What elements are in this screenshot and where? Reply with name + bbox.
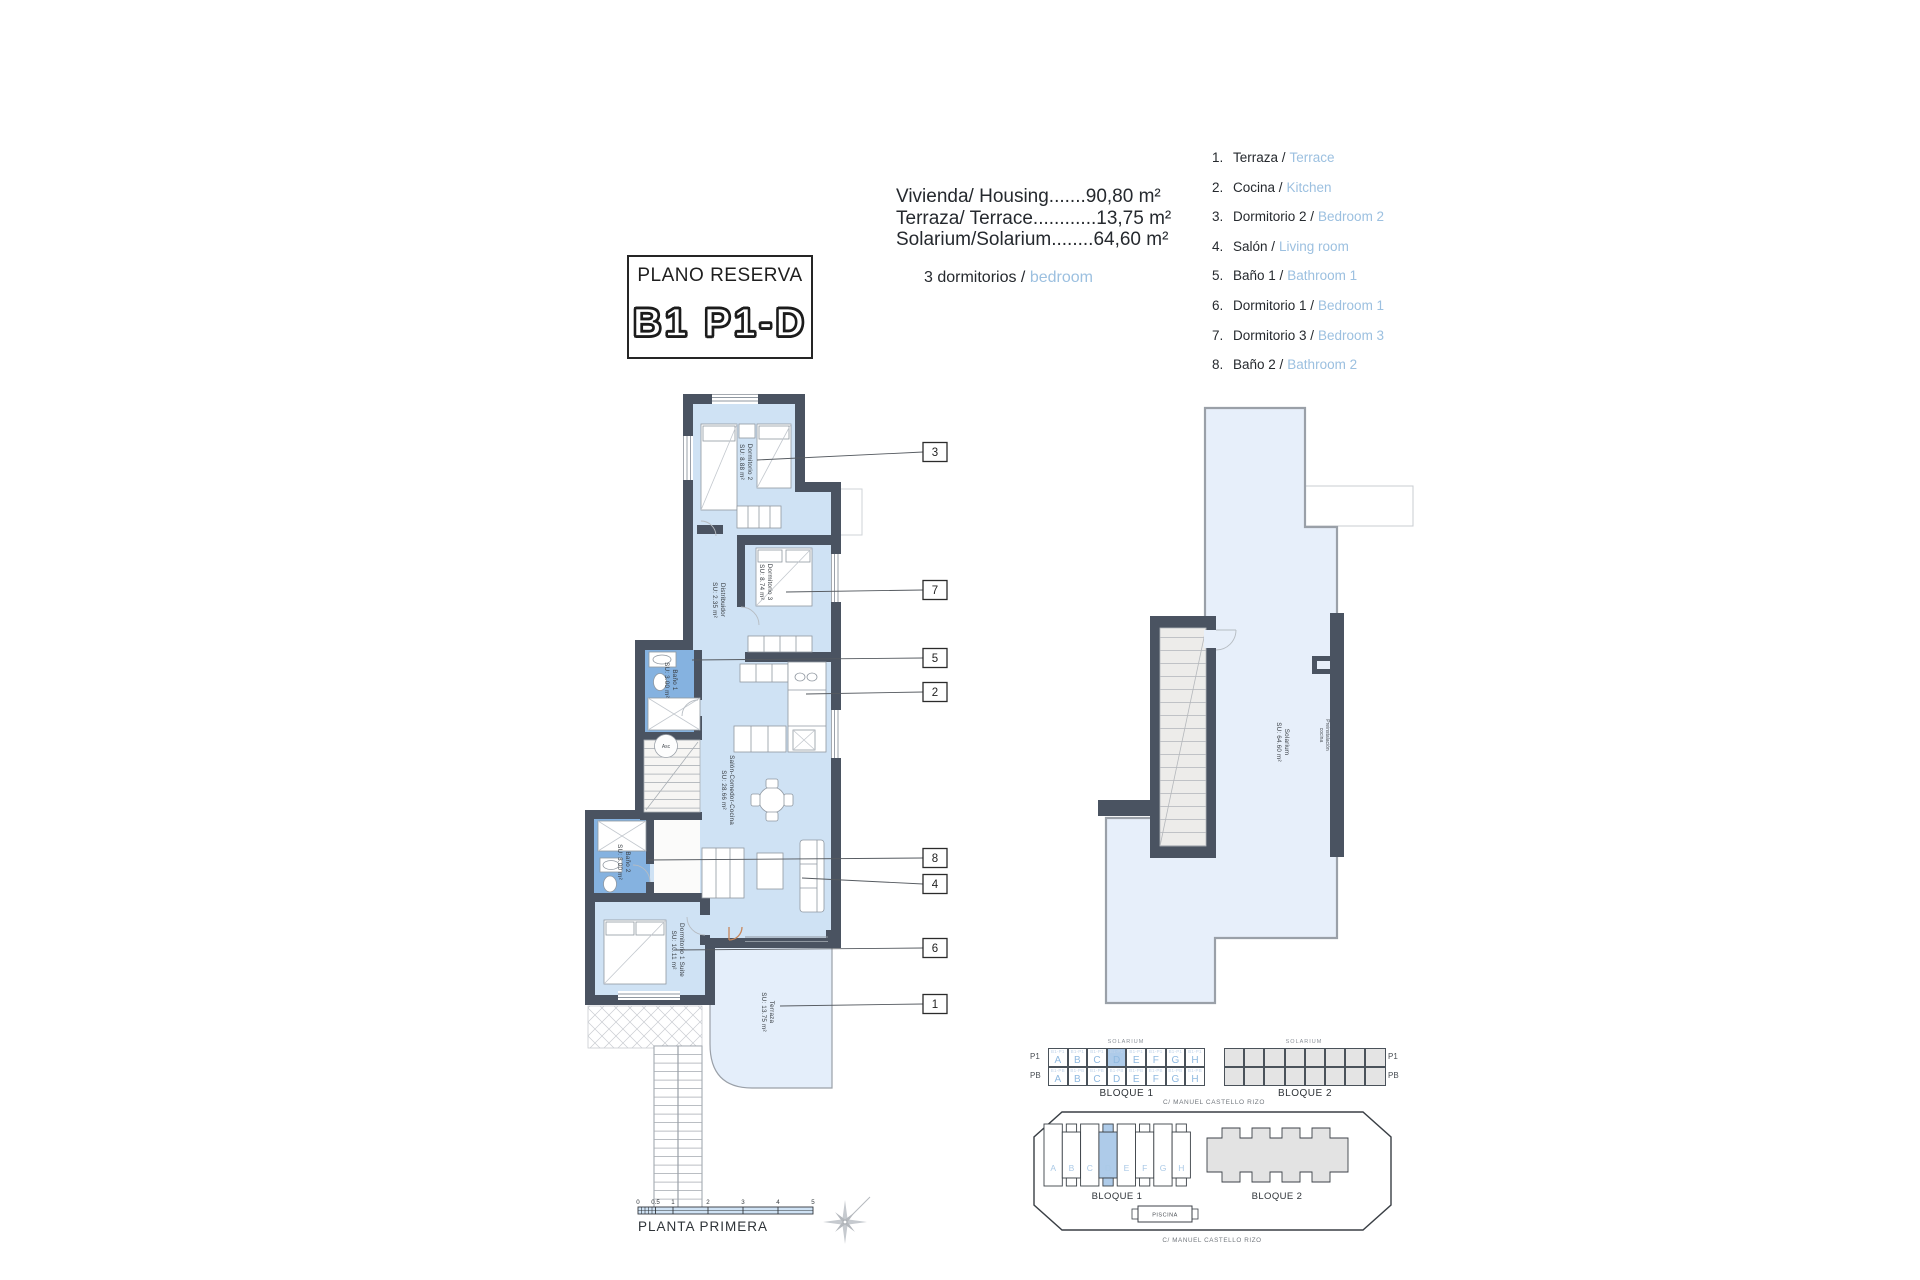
svg-text:2: 2 — [706, 1199, 710, 1206]
bloque1-units — [1044, 1124, 1190, 1186]
callout-6: 6 — [923, 939, 947, 958]
unit-cell — [1224, 1067, 1244, 1086]
area-summary: Vivienda/ Housing.......90,80 m² Terraza… — [896, 186, 1171, 288]
scale-bar — [638, 1207, 813, 1214]
svg-text:5: 5 — [932, 653, 938, 665]
svg-text:Asc: Asc — [662, 744, 671, 750]
legend-item: 5.Baño 1 /Bathroom 1 — [1212, 268, 1384, 298]
unit-cell — [1244, 1048, 1264, 1067]
svg-text:F: F — [1142, 1163, 1147, 1173]
unit-cell — [1365, 1067, 1385, 1086]
svg-text:2: 2 — [932, 687, 938, 699]
callout-boxes: 3 7 5 2 8 4 6 1 — [923, 443, 947, 1014]
unit-cell: B1-P1G — [1166, 1048, 1186, 1067]
unit-cell: B1-P1H — [1185, 1048, 1205, 1067]
scale-ticks: 0 0.5 1 2 3 4 5 — [636, 1199, 815, 1206]
site-bloque1-label: BLOQUE 1 — [1092, 1191, 1143, 1202]
svg-text:G: G — [1160, 1163, 1167, 1173]
north-arrow-icon — [823, 1197, 870, 1244]
svg-text:A: A — [1050, 1163, 1056, 1173]
callout-5: 5 — [923, 649, 947, 668]
callout-3: 3 — [923, 443, 947, 462]
unit-cell: B1-P1C — [1087, 1048, 1107, 1067]
entry-landing — [654, 820, 700, 893]
unit-cell — [1325, 1048, 1345, 1067]
unit-cell: B1-PBG — [1166, 1067, 1186, 1086]
callout-1: 1 — [923, 995, 947, 1014]
svg-text:Distribuidor: Distribuidor — [719, 583, 726, 617]
unit-cell: B1-P1F — [1146, 1048, 1166, 1067]
callout-8: 8 — [923, 849, 947, 868]
unit-cell: B1-PBF — [1146, 1067, 1166, 1086]
svg-text:5: 5 — [811, 1199, 815, 1206]
pool: PISCINA — [1132, 1206, 1198, 1222]
plan-title: PLANO RESERVA — [629, 265, 811, 287]
unit-cell — [1325, 1067, 1345, 1086]
solarium-floor-plan: Solarium SU: 64.60 m² Preinstalación coc… — [1090, 400, 1420, 1015]
bloque2-grid — [1224, 1048, 1386, 1086]
bedrooms-en: bedroom — [1030, 269, 1093, 286]
room-legend: 1.Terraza /Terrace 2.Cocina /Kitchen 3.D… — [1212, 150, 1384, 387]
bedrooms-es: 3 dormitorios / — [924, 269, 1025, 286]
bloque1-grid: B1-P1A B1-P1B B1-P1C B1-P1D B1-P1E B1-P1… — [1048, 1048, 1205, 1086]
bloque2-label: BLOQUE 2 — [1224, 1088, 1386, 1099]
svg-text:SU: 64.60 m²: SU: 64.60 m² — [1275, 722, 1282, 762]
svg-text:1: 1 — [671, 1199, 675, 1206]
unit-cell: B1-PBC — [1087, 1067, 1107, 1086]
unit-cell: B1-P1E — [1126, 1048, 1146, 1067]
svg-text:8: 8 — [932, 853, 938, 865]
unit-cell: B1-PBA — [1048, 1067, 1068, 1086]
row-label-p1: P1 — [1030, 1052, 1040, 1061]
solarium-strip-label: SOLARIUM — [1264, 1039, 1344, 1045]
legend-item: 1.Terraza /Terrace — [1212, 150, 1384, 180]
housing-area-line: Vivienda/ Housing.......90,80 m² — [896, 186, 1171, 208]
neighbour-balcony — [1305, 486, 1413, 526]
solarium-area — [1106, 408, 1337, 1003]
street-label: C/ MANUEL CASTELLO RIZO — [1162, 1237, 1261, 1244]
unit-cell: B1-P1B — [1068, 1048, 1088, 1067]
floor-name-label: PLANTA PRIMERA — [638, 1219, 768, 1234]
svg-text:6: 6 — [932, 943, 938, 955]
unit-schedule: SOLARIUM SOLARIUM P1 PB P1 PB B1-P1A B1-… — [1028, 1036, 1400, 1108]
unit-cell — [1345, 1048, 1365, 1067]
legend-item: 7.Dormitorio 3 /Bedroom 3 — [1212, 328, 1384, 358]
unit-cell: B1-PBH — [1185, 1067, 1205, 1086]
svg-text:0: 0 — [636, 1199, 640, 1206]
pergola-hatch — [588, 1006, 702, 1048]
svg-text:0.5: 0.5 — [651, 1199, 660, 1206]
room-label-dormitorio2: Dormitorio 2 SU: 8.88 m² — [738, 444, 753, 481]
unit-cell — [1264, 1048, 1284, 1067]
unit-cell — [1224, 1048, 1244, 1067]
unit-cell — [1285, 1048, 1305, 1067]
svg-text:4: 4 — [776, 1199, 780, 1206]
svg-text:Salón-Comedor-Cocina: Salón-Comedor-Cocina — [728, 755, 735, 825]
unit-cell: B1-P1A — [1048, 1048, 1068, 1067]
svg-text:Dormitorio 2: Dormitorio 2 — [746, 444, 753, 481]
terrace-area-line: Terraza/ Terrace............13,75 m² — [896, 208, 1171, 230]
svg-text:Solarium: Solarium — [1283, 729, 1290, 755]
svg-text:cocina: cocina — [1318, 728, 1324, 743]
callout-7: 7 — [923, 581, 947, 600]
svg-text:C: C — [1087, 1163, 1093, 1173]
unit-cell — [1345, 1067, 1365, 1086]
svg-text:Terraza: Terraza — [768, 1001, 775, 1024]
site-bloque2-label: BLOQUE 2 — [1252, 1191, 1303, 1202]
unit-cell: B1-PBD — [1107, 1067, 1127, 1086]
svg-text:Baño 2: Baño 2 — [624, 851, 631, 872]
lift-circle: Asc — [655, 735, 678, 758]
row-label-pb: PB — [1030, 1071, 1041, 1080]
svg-text:Baño 1: Baño 1 — [671, 669, 678, 690]
svg-text:SU: 8.88 m²: SU: 8.88 m² — [738, 444, 745, 480]
svg-text:E: E — [1124, 1163, 1130, 1173]
solarium-area-line: Solarium/Solarium........64,60 m² — [896, 229, 1171, 251]
row-label-p1: P1 — [1388, 1052, 1398, 1061]
svg-text:D: D — [1105, 1163, 1111, 1173]
svg-text:1: 1 — [932, 999, 938, 1011]
legend-item: 2.Cocina /Kitchen — [1212, 180, 1384, 210]
unit-cell: B1-PBB — [1068, 1067, 1088, 1086]
unit-cell: B1-PBE — [1126, 1067, 1146, 1086]
unit-code: B1 P1-D — [629, 301, 811, 346]
floor-plan-sheet: PLANO RESERVA B1 P1-D Vivienda/ Housing.… — [0, 0, 1920, 1280]
svg-text:SU: 8.74 m²: SU: 8.74 m² — [758, 564, 765, 600]
svg-text:4: 4 — [932, 879, 939, 891]
room-label-distribuidor: Distribuidor SU: 2.35 m² — [711, 582, 726, 618]
unit-cell — [1305, 1048, 1325, 1067]
unit-cell — [1365, 1048, 1385, 1067]
unit-cell — [1305, 1067, 1325, 1086]
scale-bar-group: 0 0.5 1 2 3 4 5 PLANTA PRIMERA — [630, 1192, 930, 1267]
row-label-pb: PB — [1388, 1071, 1399, 1080]
legend-item: 3.Dormitorio 2 /Bedroom 2 — [1212, 209, 1384, 239]
unit-cell — [1264, 1067, 1284, 1086]
apartment-floor-plan: Asc — [585, 392, 953, 1220]
legend-item: 6.Dormitorio 1 /Bedroom 1 — [1212, 298, 1384, 328]
svg-text:3: 3 — [932, 447, 938, 459]
legend-item: 4.Salón /Living room — [1212, 239, 1384, 269]
svg-text:Dormitorio 3: Dormitorio 3 — [766, 564, 773, 601]
svg-text:H: H — [1178, 1163, 1184, 1173]
svg-text:SU: 2.35 m²: SU: 2.35 m² — [711, 582, 718, 618]
svg-text:SU: 28.66 m²: SU: 28.66 m² — [720, 770, 727, 810]
callout-2: 2 — [923, 683, 947, 702]
svg-text:SU: 3.00 m²: SU: 3.00 m² — [663, 662, 670, 698]
legend-item: 8.Baño 2 /Bathroom 2 — [1212, 357, 1384, 387]
bloque1-label: BLOQUE 1 — [1048, 1088, 1205, 1099]
reservation-plan-box: PLANO RESERVA B1 P1-D — [627, 255, 813, 359]
svg-text:SU: 13.75 m²: SU: 13.75 m² — [760, 992, 767, 1032]
svg-text:B: B — [1069, 1163, 1075, 1173]
room-label-dormitorio3: Dormitorio 3 SU: 8.74 m² — [758, 564, 773, 601]
unit-cell — [1285, 1067, 1305, 1086]
callout-4: 4 — [923, 875, 947, 894]
svg-text:3: 3 — [741, 1199, 745, 1206]
unit-cell — [1244, 1067, 1264, 1086]
svg-text:7: 7 — [932, 585, 938, 597]
svg-text:SU: 3.00 m²: SU: 3.00 m² — [616, 844, 623, 880]
svg-text:PISCINA: PISCINA — [1152, 1213, 1178, 1219]
bedrooms-line: 3 dormitorios / bedroom — [924, 267, 1171, 289]
site-plan: A B C D E F G H BLOQUE 1 BLOQUE 2 PISCIN… — [1028, 1105, 1398, 1253]
solarium-strip-label: SOLARIUM — [1086, 1039, 1166, 1045]
unit-cell-selected: B1-P1D — [1107, 1048, 1127, 1067]
external-staircase — [654, 1046, 702, 1212]
